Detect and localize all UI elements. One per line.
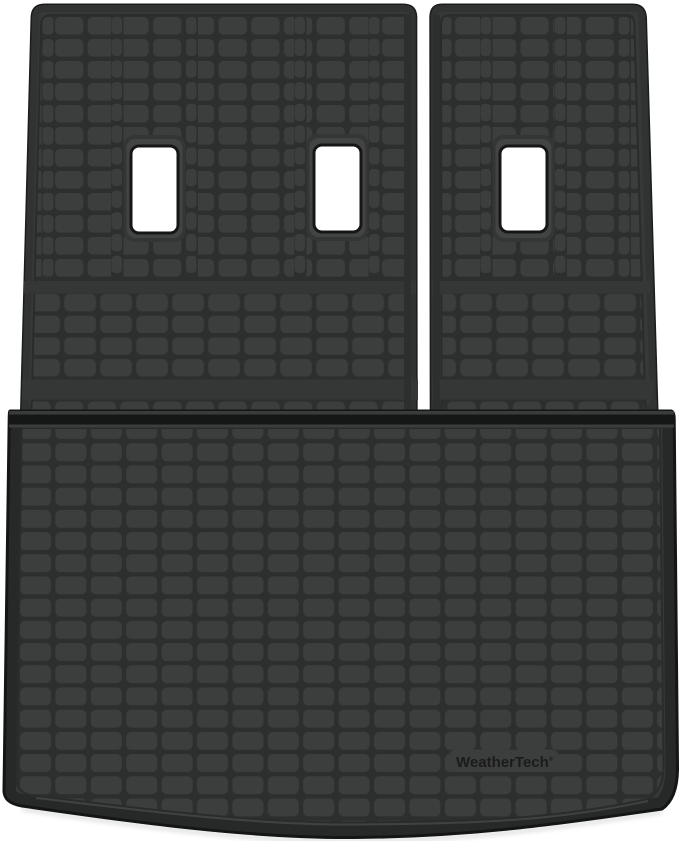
svg-text:WeatherTech®: WeatherTech®	[456, 754, 554, 771]
